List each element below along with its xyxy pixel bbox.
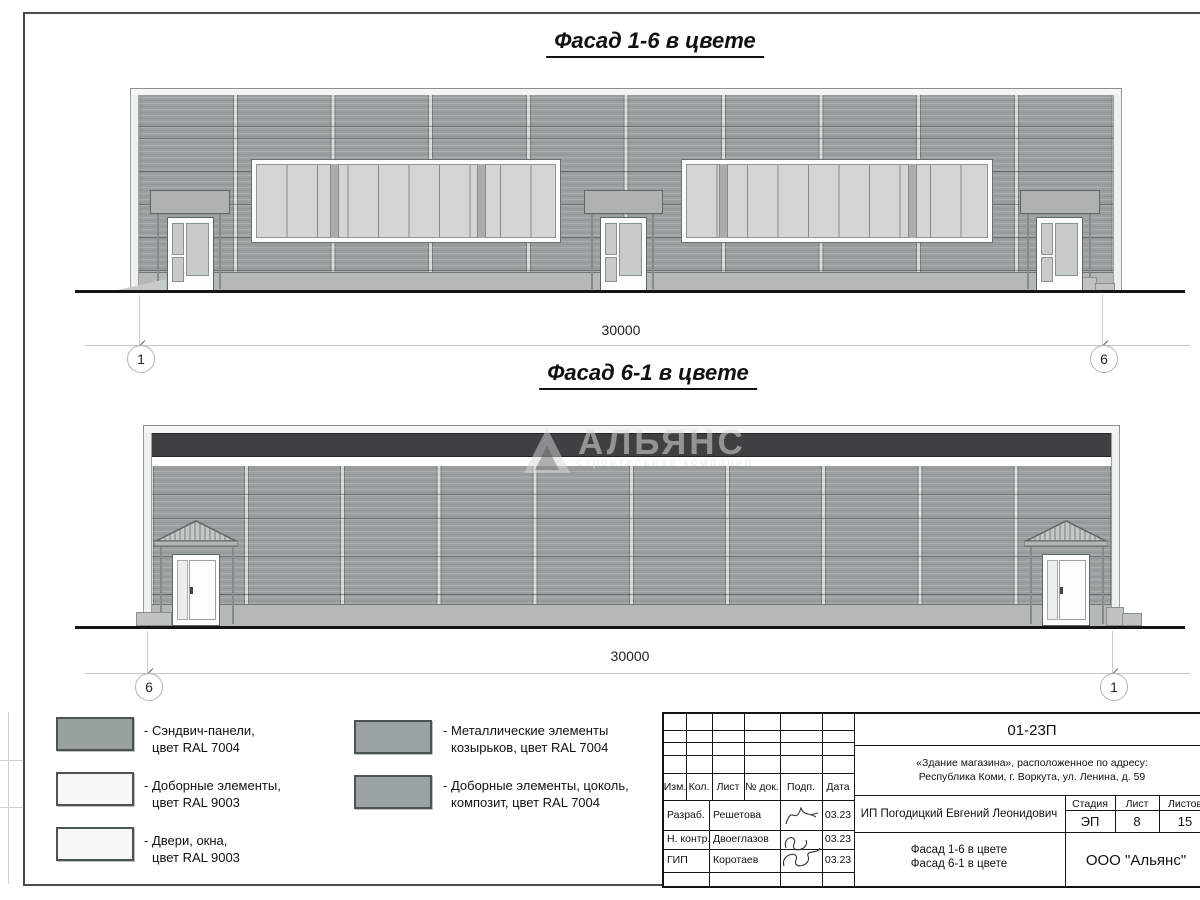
- axis-marker-6: 6: [135, 673, 163, 701]
- stamp-line: [854, 714, 855, 886]
- stamp-object-address-2: Республика Коми, г. Воркута, ул. Ленина,…: [919, 771, 1146, 783]
- stamp-stage-value: ЭП: [1081, 814, 1100, 829]
- ribbon-window-right: [682, 160, 992, 242]
- stamp-col-kol: Кол.: [689, 781, 710, 793]
- window-mullion: [477, 164, 486, 238]
- stamp-client: ИП Погодицкий Евгений Леонидович: [861, 808, 1058, 820]
- stamp-sheet-title-1: Фасад 1-6 в цвете: [911, 844, 1007, 856]
- signature: [782, 802, 820, 828]
- legend-label: - Доборные элементы, цвет RAL 9003: [144, 777, 281, 811]
- legend-label-line: - Сэндвич-панели,: [144, 722, 255, 739]
- legend-label-line: цвет RAL 7004: [152, 739, 255, 756]
- door-handle: [190, 587, 193, 594]
- stamp-col-izm: Изм.: [664, 781, 687, 793]
- canopy-post: [1030, 546, 1032, 624]
- stamp-col-ndok: № док.: [745, 781, 779, 793]
- signature: [778, 832, 822, 872]
- axis-marker-1: 1: [127, 345, 155, 373]
- stamp-sheet-title-2: Фасад 6-1 в цвете: [911, 858, 1007, 870]
- door-leaf: [1059, 560, 1086, 620]
- window-mullion: [330, 164, 339, 238]
- stamp-col-podp: Подп.: [787, 781, 815, 793]
- stamp-col-list: Лист: [717, 781, 740, 793]
- window-mullion: [719, 164, 728, 238]
- legend-swatch-plinth-composite: [354, 775, 432, 809]
- stamp-company: ООО "Альянс": [1086, 852, 1186, 869]
- legend-swatch-canopy-metal: [354, 720, 432, 754]
- stamp-role-razrab: Разраб.: [667, 809, 705, 821]
- window-mullion: [908, 164, 917, 238]
- legend-label: - Двери, окна, цвет RAL 9003: [144, 832, 240, 866]
- ground-line: [75, 290, 1185, 293]
- stamp-line: [664, 755, 854, 756]
- sheet-frame-left: [23, 12, 25, 886]
- margin-tick: [0, 807, 23, 808]
- canopy-post: [219, 212, 221, 289]
- legend-label-line: - Доборные элементы,: [144, 777, 281, 794]
- door-glass-pane: [605, 223, 617, 255]
- stamp-date: 03.23: [825, 809, 851, 821]
- stamp-object-address-1: «Здание магазина», расположенное по адре…: [916, 757, 1148, 769]
- door-glass-pane: [172, 257, 184, 282]
- stamp-date: 03.23: [825, 854, 851, 866]
- stamp-sheets-value: 15: [1178, 814, 1192, 829]
- stamp-line: [1115, 795, 1116, 832]
- stamp-line: [664, 730, 854, 731]
- dimension-label: 30000: [611, 648, 650, 664]
- door-glass-pane: [1041, 257, 1053, 282]
- stamp-line: [664, 830, 854, 831]
- stamp-line: [664, 872, 854, 873]
- door-sidelight: [1047, 560, 1058, 620]
- stamp-line: [854, 745, 1200, 746]
- corner-trim-right: [1113, 95, 1122, 290]
- entrance-step: [1122, 613, 1142, 626]
- stamp-date: 03.23: [825, 833, 851, 845]
- stamp-line: [1065, 810, 1200, 811]
- door-glass-pane: [1041, 223, 1053, 255]
- margin-tick: [0, 760, 23, 761]
- legend-swatch-sandwich-panels: [56, 717, 134, 751]
- canopy-post: [652, 212, 654, 289]
- legend-label-line: композит, цвет RAL 7004: [451, 794, 629, 811]
- legend-label: - Сэндвич-панели, цвет RAL 7004: [144, 722, 255, 756]
- canopy-post: [1102, 546, 1104, 624]
- solid-entrance-door: [172, 554, 220, 626]
- facade-1-6-title-text: Фасад 1-6 в цвете: [546, 28, 764, 58]
- corner-trim-left: [130, 95, 139, 290]
- stamp-sheet-label: Лист: [1126, 798, 1149, 810]
- legend-label: - Металлические элементы козырьков, цвет…: [443, 722, 608, 756]
- ground-line: [75, 626, 1185, 629]
- door-sidelight: [177, 560, 188, 620]
- door-glass-pane: [172, 223, 184, 255]
- ribbon-window-left: [252, 160, 560, 242]
- canopy-post: [157, 212, 159, 289]
- stamp-line: [854, 795, 1200, 796]
- stamp-sheet-value: 8: [1133, 814, 1140, 829]
- stamp-stage-label: Стадия: [1072, 798, 1108, 810]
- stamp-name-reshetova: Решетова: [713, 809, 761, 821]
- door-leaf: [189, 560, 216, 620]
- stamp-line: [664, 849, 854, 850]
- facade-1-6-title: Фасад 1-6 в цвете: [546, 28, 764, 54]
- flat-canopy: [1020, 190, 1100, 214]
- facade2-wall-panels: [150, 466, 1111, 604]
- legend-label-line: цвет RAL 9003: [152, 849, 240, 866]
- stamp-sheets-label: Листов: [1168, 798, 1200, 810]
- legend-label-line: - Двери, окна,: [144, 832, 240, 849]
- axis-marker-6: 6: [1090, 345, 1118, 373]
- stamp-line: [712, 714, 713, 800]
- facade2-plinth: [150, 604, 1111, 627]
- corner-trim-right: [1111, 433, 1120, 626]
- door-glass-pane: [619, 223, 642, 276]
- axis-marker-1: 1: [1100, 673, 1128, 701]
- door-glass-pane: [186, 223, 209, 276]
- gable-canopy: [1024, 519, 1108, 549]
- glazed-entrance-door: [600, 217, 647, 291]
- flat-canopy: [584, 190, 663, 214]
- dimension-label: 30000: [602, 322, 641, 338]
- door-handle: [1060, 587, 1063, 594]
- stamp-name-dvoeglazov: Двоеглазов: [713, 833, 769, 845]
- facade-6-1-title: Фасад 6-1 в цвете: [539, 360, 757, 386]
- dimension-line: [85, 673, 1190, 674]
- glazed-entrance-door: [1036, 217, 1083, 291]
- dimension-line: [85, 345, 1190, 346]
- drawing-sheet: Фасад 1-6 в цвете: [0, 0, 1200, 900]
- sheet-frame-top: [23, 12, 1200, 14]
- stamp-role-gip: ГИП: [667, 854, 688, 866]
- stamp-name-korotaev: Коротаев: [713, 854, 758, 866]
- legend-label-line: козырьков, цвет RAL 7004: [451, 739, 608, 756]
- legend-label-line: - Металлические элементы: [443, 722, 608, 739]
- stamp-line: [854, 832, 1200, 833]
- facade-6-1-title-text: Фасад 6-1 в цвете: [539, 360, 757, 390]
- stamp-line: [664, 773, 854, 774]
- legend-label-line: цвет RAL 9003: [152, 794, 281, 811]
- legend-label: - Доборные элементы, цоколь, композит, ц…: [443, 777, 629, 811]
- corner-trim-left: [143, 433, 152, 626]
- title-block: Изм. Кол. Лист № док. Подп. Дата Разраб.…: [662, 712, 1200, 888]
- canopy-post: [591, 212, 593, 289]
- solid-entrance-door: [1042, 554, 1090, 626]
- gable-canopy: [154, 519, 238, 549]
- legend-label-line: - Доборные элементы, цоколь,: [443, 777, 629, 794]
- flat-canopy: [150, 190, 230, 214]
- glazed-entrance-door: [167, 217, 214, 291]
- stamp-line: [1159, 795, 1160, 832]
- watermark-subtitle: строительная компания: [577, 457, 753, 469]
- canopy-post: [232, 546, 234, 624]
- legend-swatch-doors-windows: [56, 827, 134, 861]
- stamp-doc-number: 01-23П: [1007, 722, 1056, 739]
- margin-column-line: [8, 712, 9, 884]
- canopy-post: [1027, 212, 1029, 289]
- door-glass-pane: [1055, 223, 1078, 276]
- stamp-line: [664, 800, 854, 801]
- stamp-line: [664, 742, 854, 743]
- stamp-line: [1065, 795, 1066, 886]
- door-glass-pane: [605, 257, 617, 282]
- entrance-step: [136, 612, 172, 626]
- stamp-role-nkontr: Н. контр.: [667, 833, 710, 845]
- stamp-col-data: Дата: [826, 781, 849, 793]
- legend-swatch-trim-elements: [56, 772, 134, 806]
